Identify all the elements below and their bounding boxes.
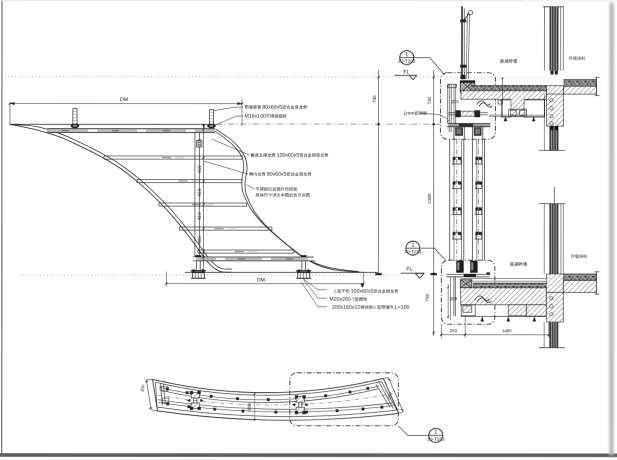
svg-text:JD-T203: JD-T203	[427, 437, 445, 442]
svg-text:500: 500	[247, 403, 252, 411]
svg-text:200: 200	[450, 296, 458, 301]
svg-text:740: 740	[425, 293, 430, 301]
svg-text:具体尺寸详见本图纸各节点图: 具体尺寸详见本图纸各节点图	[255, 192, 309, 197]
svg-text:410: 410	[197, 165, 202, 173]
svg-text:1: 1	[405, 52, 408, 58]
svg-text:200: 200	[451, 99, 459, 104]
svg-text:JD-T201: JD-T201	[404, 249, 422, 254]
svg-text:410: 410	[197, 188, 202, 196]
svg-text:普通砖墙: 普通砖墙	[500, 59, 518, 64]
svg-text:外墙涂料: 外墙涂料	[570, 254, 588, 259]
svg-text:1: 1	[411, 243, 414, 249]
svg-text:730: 730	[427, 96, 432, 104]
svg-text:1: 1	[434, 430, 437, 436]
svg-text:FL: FL	[403, 70, 409, 76]
svg-text:DM: DM	[120, 97, 128, 103]
svg-text:不锈钢拉丝面外包铝板: 不锈钢拉丝面外包铝板	[255, 186, 298, 191]
svg-text:外墙涂料: 外墙涂料	[569, 56, 587, 61]
svg-text:250: 250	[450, 328, 458, 333]
svg-text:405: 405	[197, 236, 202, 244]
svg-text:2380: 2380	[427, 193, 432, 204]
svg-text:DM: DM	[257, 277, 265, 283]
svg-text:1480: 1480	[502, 328, 512, 333]
svg-text:JD-T202: JD-T202	[398, 59, 416, 64]
svg-text:普通砖墙: 普通砖墙	[510, 262, 528, 267]
svg-text:730: 730	[372, 95, 377, 103]
svg-text:410: 410	[197, 212, 202, 220]
svg-text:410: 410	[197, 138, 202, 146]
svg-text:FL: FL	[406, 267, 412, 273]
